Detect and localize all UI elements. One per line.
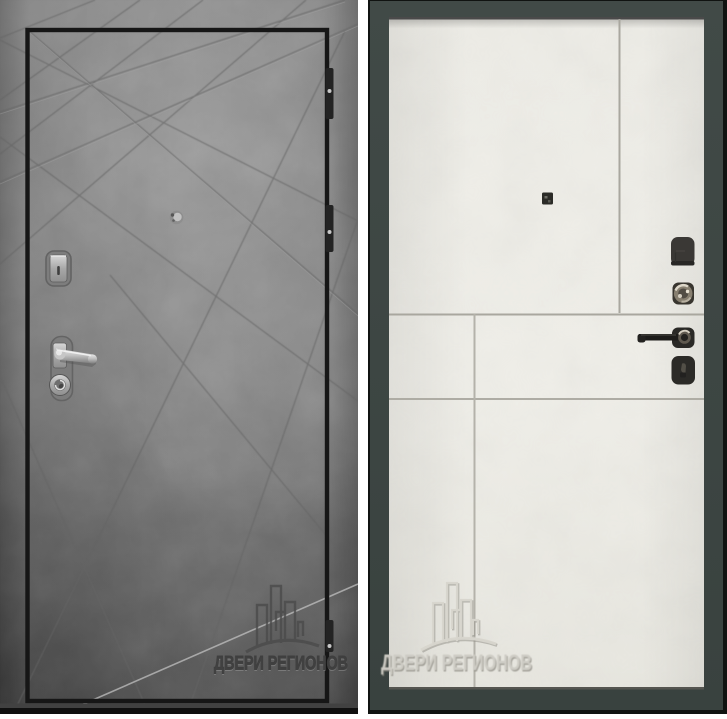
svg-text:ДВЕРИ РЕГИОНОВ: ДВЕРИ РЕГИОНОВ bbox=[381, 650, 532, 675]
svg-text:ДВЕРИ РЕГИОНОВ: ДВЕРИ РЕГИОНОВ bbox=[214, 653, 348, 675]
